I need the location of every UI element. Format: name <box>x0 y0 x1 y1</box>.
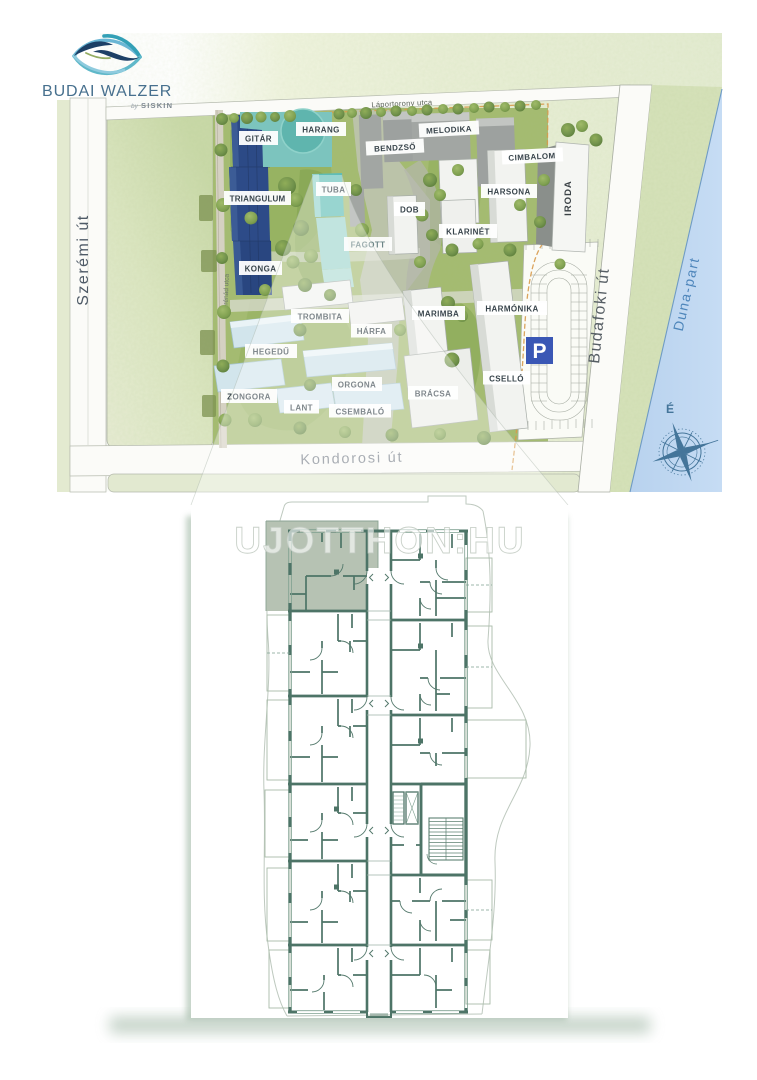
svg-text:by: by <box>131 103 139 110</box>
svg-text:MARIMBA: MARIMBA <box>418 310 459 319</box>
svg-text:TRIANGULUM: TRIANGULUM <box>230 195 286 204</box>
svg-text:BUDAI WALZER: BUDAI WALZER <box>42 83 172 100</box>
svg-text:HARMÓNIKA: HARMÓNIKA <box>485 305 538 314</box>
svg-text:UJOTTHON:HU: UJOTTHON:HU <box>234 520 525 561</box>
svg-text:DOB: DOB <box>400 206 419 215</box>
svg-text:KLARINÉT: KLARINÉT <box>446 228 490 237</box>
svg-text:KONGA: KONGA <box>245 265 277 274</box>
svg-text:HARANG: HARANG <box>302 126 340 135</box>
svg-text:É: É <box>666 401 674 416</box>
svg-text:GITÁR: GITÁR <box>245 135 272 144</box>
svg-text:SISKIN: SISKIN <box>141 101 173 110</box>
svg-text:Szerémi út: Szerémi út <box>75 214 92 305</box>
svg-text:CSELLÓ: CSELLÓ <box>489 375 524 384</box>
svg-text:IRODA: IRODA <box>563 180 574 216</box>
svg-text:HARSONA: HARSONA <box>487 188 530 197</box>
svg-text:P: P <box>532 340 546 363</box>
